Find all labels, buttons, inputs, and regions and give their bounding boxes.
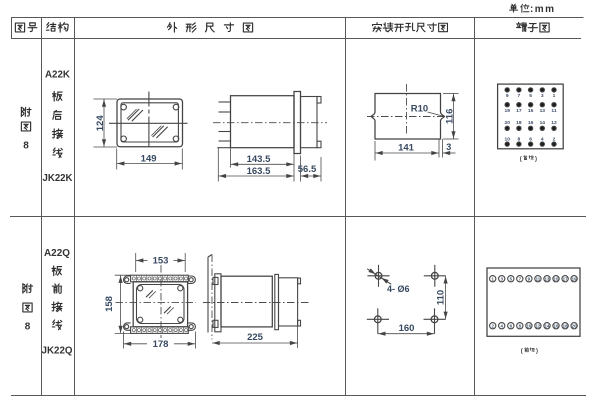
svg-text:2: 2 <box>553 136 556 142</box>
svg-text:163.5: 163.5 <box>247 166 271 177</box>
svg-text:10: 10 <box>504 136 510 142</box>
svg-text:(: ( <box>520 156 522 162</box>
svg-text:15: 15 <box>528 108 534 114</box>
svg-text:19: 19 <box>504 108 510 114</box>
svg-text:18: 18 <box>516 120 522 126</box>
svg-text:(: ( <box>521 349 523 355</box>
svg-text:153: 153 <box>153 256 169 267</box>
svg-text:JK22Q: JK22Q <box>42 346 73 357</box>
svg-text:JK22K: JK22K <box>43 173 74 184</box>
svg-text:13: 13 <box>545 276 550 281</box>
svg-text:): ) <box>535 156 537 162</box>
svg-text:143.5: 143.5 <box>247 154 271 165</box>
svg-text:A22Q: A22Q <box>44 248 70 259</box>
svg-text:7: 7 <box>518 93 521 99</box>
svg-text:R10: R10 <box>411 104 428 115</box>
svg-text:141: 141 <box>398 143 415 154</box>
svg-text:9: 9 <box>506 93 509 99</box>
svg-text:17: 17 <box>516 108 522 114</box>
svg-text:110: 110 <box>435 290 446 305</box>
svg-text:124: 124 <box>95 115 106 132</box>
svg-text:20: 20 <box>572 323 577 328</box>
svg-text:): ) <box>536 349 538 355</box>
svg-text:16: 16 <box>554 323 559 328</box>
svg-text:12: 12 <box>551 120 557 126</box>
svg-text:149: 149 <box>141 154 157 165</box>
svg-text:225: 225 <box>247 332 264 343</box>
svg-text:12: 12 <box>535 323 540 328</box>
svg-text:16: 16 <box>528 120 534 126</box>
svg-text:178: 178 <box>153 339 169 350</box>
svg-text:20: 20 <box>504 120 510 126</box>
svg-text:19: 19 <box>572 276 577 281</box>
svg-text:8: 8 <box>23 140 29 151</box>
svg-text:14: 14 <box>545 323 550 328</box>
svg-text:4: 4 <box>541 136 544 142</box>
svg-text:4- Ø6: 4- Ø6 <box>387 284 410 294</box>
svg-text:5: 5 <box>529 93 532 99</box>
svg-text:18: 18 <box>563 323 568 328</box>
svg-text:A22K: A22K <box>45 70 71 81</box>
svg-text:6: 6 <box>529 136 532 142</box>
svg-text:160: 160 <box>399 323 415 334</box>
svg-text:3: 3 <box>446 142 451 152</box>
svg-text:1: 1 <box>553 93 556 99</box>
svg-text:3: 3 <box>541 93 544 99</box>
svg-text:158: 158 <box>104 296 115 312</box>
svg-text:15: 15 <box>554 276 559 281</box>
svg-text:116: 116 <box>444 109 455 124</box>
svg-text:11: 11 <box>536 276 541 281</box>
svg-text:13: 13 <box>540 108 546 114</box>
svg-text:14: 14 <box>540 120 546 126</box>
svg-text:8: 8 <box>25 322 31 333</box>
svg-text:8: 8 <box>518 136 521 142</box>
svg-text:17: 17 <box>563 276 568 281</box>
svg-text:10: 10 <box>526 323 531 328</box>
svg-text:56.5: 56.5 <box>298 164 317 175</box>
svg-text:11: 11 <box>551 108 556 114</box>
